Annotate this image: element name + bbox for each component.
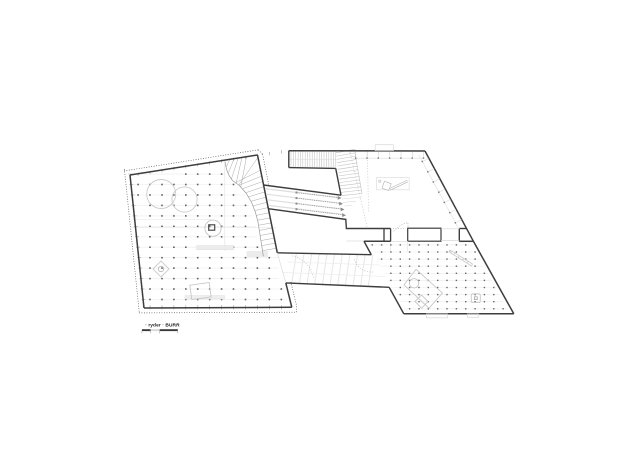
svg-text:· ryder · BURR: · ryder · BURR [145,322,180,328]
